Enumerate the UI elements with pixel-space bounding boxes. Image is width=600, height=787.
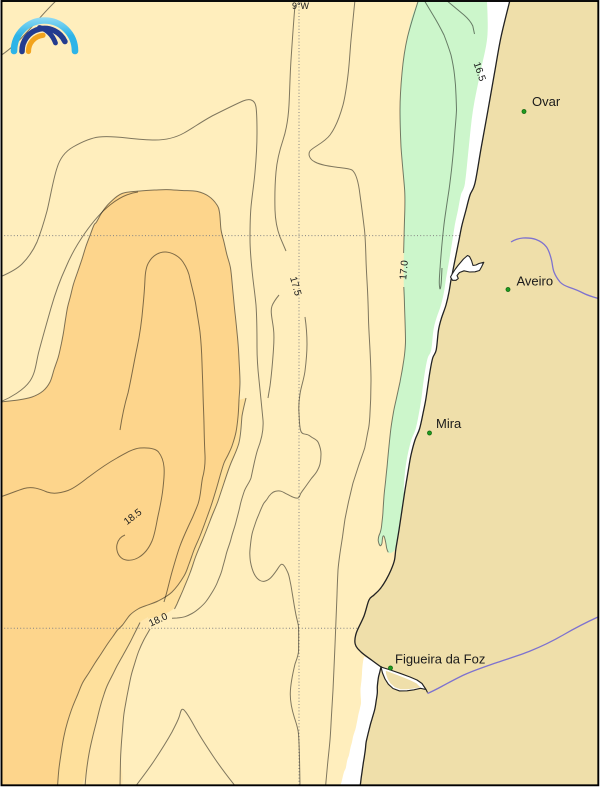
svg-text:Mira: Mira (436, 416, 462, 431)
svg-text:9°W: 9°W (292, 1, 310, 11)
svg-text:17.0: 17.0 (398, 259, 411, 280)
svg-text:Ovar: Ovar (532, 94, 561, 109)
svg-text:Aveiro: Aveiro (517, 274, 554, 289)
svg-text:Figueira da Foz: Figueira da Foz (395, 652, 485, 667)
